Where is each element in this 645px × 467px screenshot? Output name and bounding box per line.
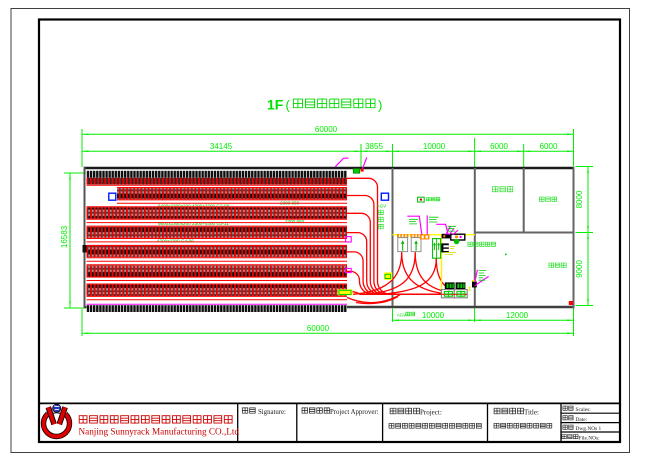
- svg-text:16583: 16583: [60, 225, 69, 248]
- svg-text:60000: 60000: [307, 324, 330, 333]
- svg-text:5600x2300x200 2300+4400 G3-11: 5600x2300x200 2300+4400 G3-11: [158, 221, 229, 226]
- svg-text:Dwg.NOs 1: Dwg.NOs 1: [576, 426, 602, 432]
- svg-text:AGV: AGV: [377, 204, 388, 209]
- svg-text:6000: 6000: [490, 142, 508, 151]
- svg-text:1F: 1F: [267, 97, 284, 113]
- svg-text:10000: 10000: [422, 311, 445, 320]
- svg-text:8000: 8000: [575, 190, 584, 208]
- svg-text:Date:: Date:: [576, 417, 588, 423]
- svg-text:6000: 6000: [540, 142, 558, 151]
- svg-text:3855: 3855: [365, 142, 383, 151]
- svg-text:Nanjing Sunnyrack Manufacturin: Nanjing Sunnyrack Manufacturing CO.,Ltd: [79, 427, 240, 437]
- svg-text:Scales:: Scales:: [576, 407, 592, 413]
- svg-text:File.NOs:: File.NOs:: [579, 436, 601, 442]
- svg-text:2300 650: 2300 650: [285, 219, 305, 224]
- svg-text:Project:: Project:: [420, 409, 442, 417]
- svg-text:4300x2300 G4-06: 4300x2300 G4-06: [157, 239, 194, 244]
- svg-text:10000: 10000: [423, 142, 446, 151]
- svg-text:60000: 60000: [315, 125, 338, 134]
- svg-text:12000: 12000: [506, 311, 529, 320]
- svg-text:34145: 34145: [210, 142, 233, 151]
- svg-text:Project Approver:: Project Approver:: [330, 409, 379, 416]
- svg-text:Signature:: Signature:: [258, 409, 286, 416]
- svg-text:(: (: [286, 98, 291, 113]
- svg-text:AGV: AGV: [397, 313, 406, 318]
- svg-text:9000: 9000: [575, 260, 584, 278]
- svg-text:Title:: Title:: [524, 409, 539, 417]
- svg-text:): ): [378, 98, 382, 113]
